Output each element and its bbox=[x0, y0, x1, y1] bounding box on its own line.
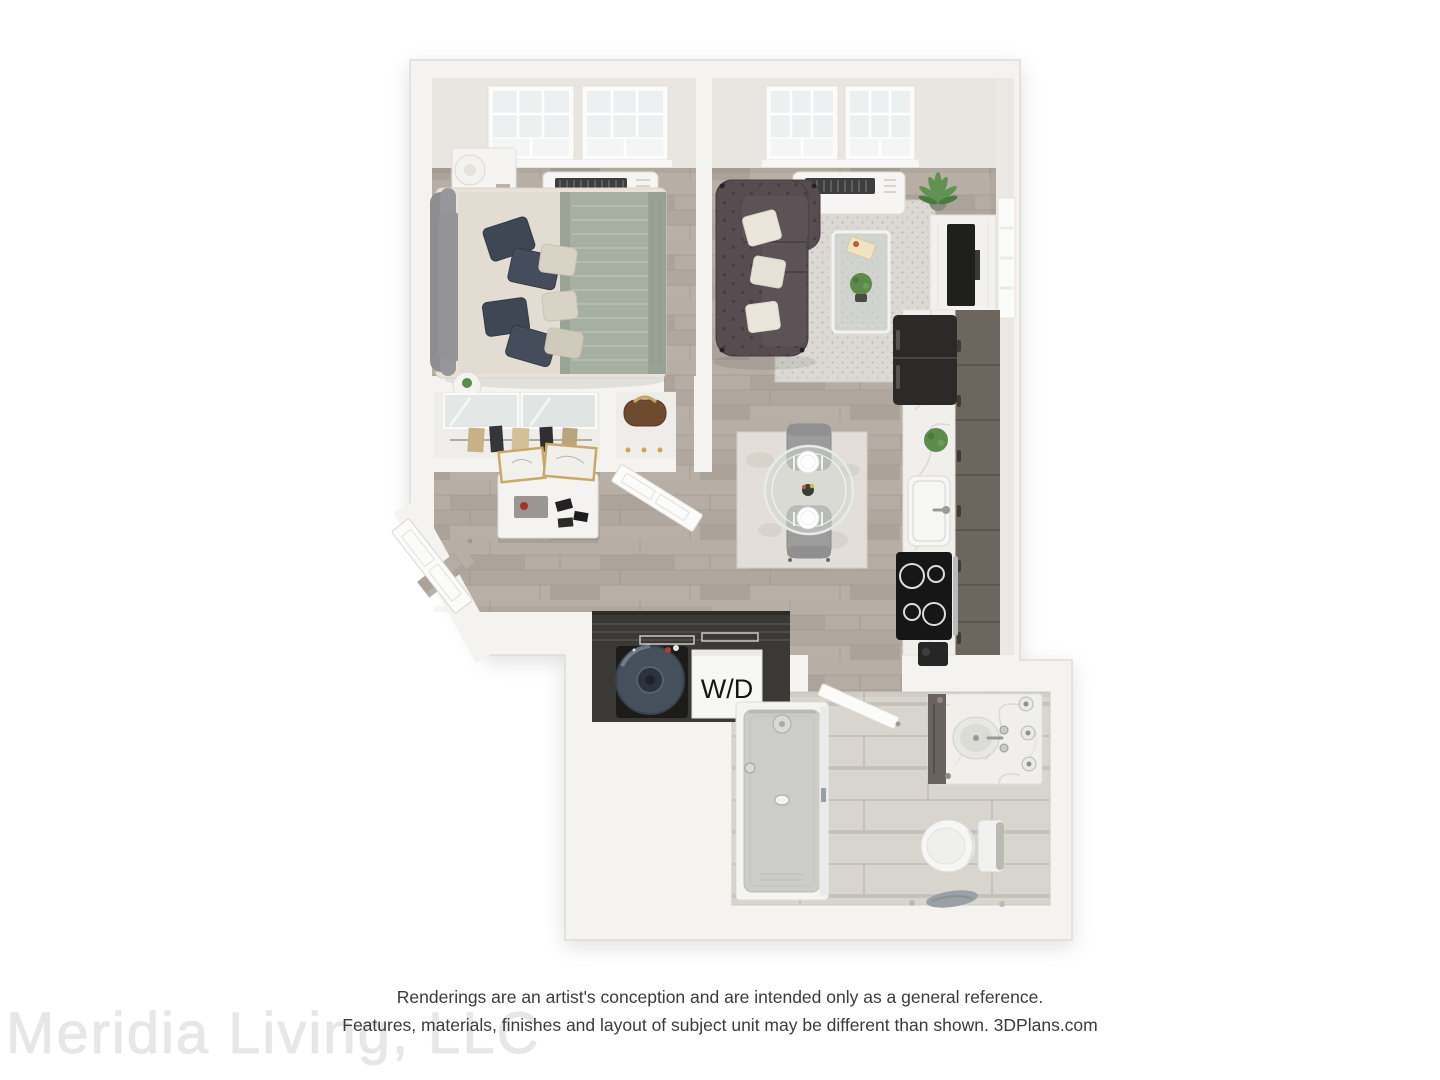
tv-console bbox=[930, 215, 996, 315]
coffee-table bbox=[833, 232, 889, 332]
water-heater bbox=[616, 645, 688, 718]
coffee-maker bbox=[918, 642, 948, 666]
bedroom-doorway-floor2 bbox=[676, 392, 694, 472]
refrigerator bbox=[893, 315, 957, 405]
oven-handle bbox=[953, 556, 958, 636]
floorplan-page: W/D bbox=[0, 0, 1440, 1080]
sofa bbox=[713, 180, 820, 370]
kitchen-sink bbox=[908, 476, 950, 546]
living-side-window bbox=[998, 198, 1015, 318]
disclaimer: Renderings are an artist's conception an… bbox=[0, 983, 1440, 1039]
shower bbox=[736, 702, 828, 900]
bedroom bbox=[430, 148, 666, 400]
plate bbox=[797, 451, 819, 473]
kitchen bbox=[893, 310, 1000, 666]
bedroom-window-2 bbox=[578, 86, 672, 167]
disclaimer-line1: Renderings are an artist's conception an… bbox=[0, 983, 1440, 1011]
bed bbox=[430, 188, 666, 389]
wd-label: W/D bbox=[701, 674, 753, 704]
living-window-2 bbox=[841, 86, 919, 167]
shower-drain bbox=[775, 795, 789, 805]
toilet bbox=[921, 820, 1004, 872]
bedroom-doorway-floor bbox=[664, 376, 694, 392]
kitchen-wall-cabinets bbox=[955, 310, 1000, 655]
dining-table bbox=[765, 446, 853, 534]
shower-valve bbox=[745, 763, 755, 773]
dining-area bbox=[737, 424, 867, 568]
counter-plant bbox=[924, 428, 948, 452]
tv-screen bbox=[947, 224, 975, 306]
picture-frames bbox=[499, 444, 597, 482]
console-table bbox=[498, 474, 598, 543]
cooktop-range bbox=[896, 552, 958, 640]
plate bbox=[797, 507, 819, 529]
living-window-1 bbox=[762, 86, 842, 167]
floorplan-rendering: W/D bbox=[0, 0, 1440, 1080]
disclaimer-line2: Features, materials, finishes and layout… bbox=[0, 1011, 1440, 1039]
